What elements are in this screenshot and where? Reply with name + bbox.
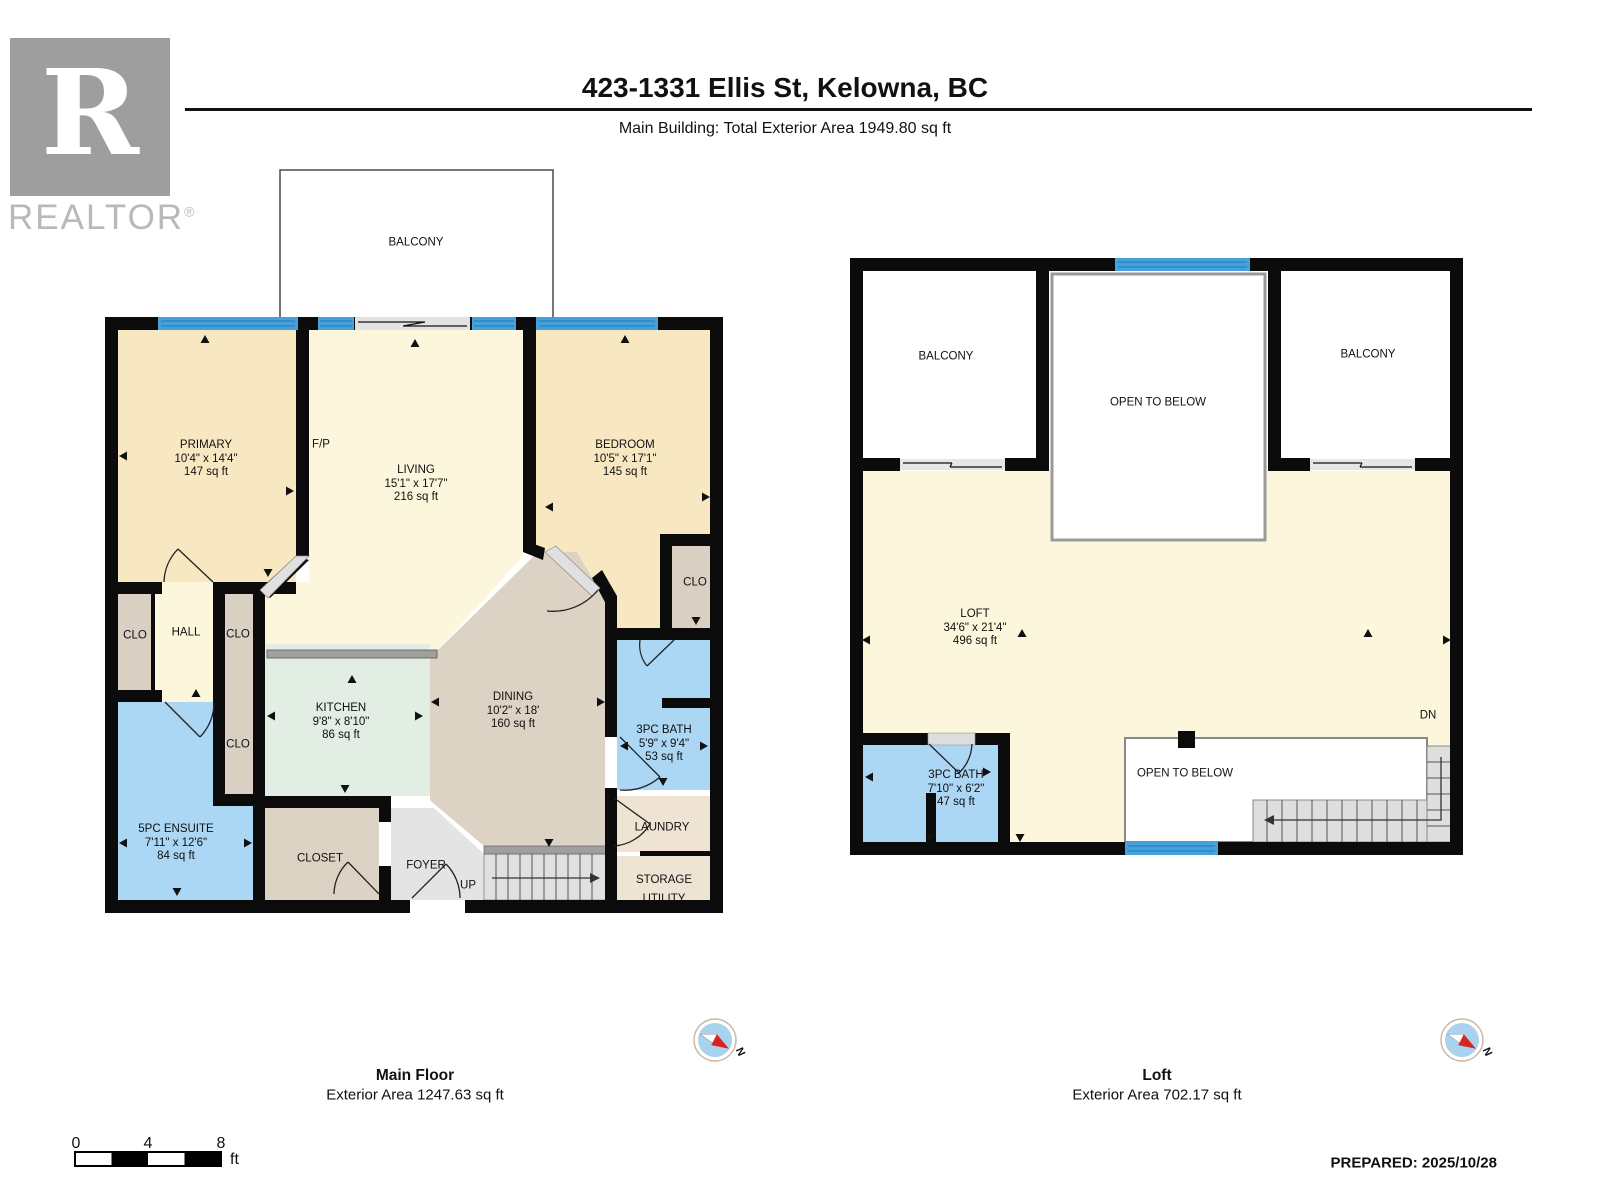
room-label-loft: LOFT34'6" x 21'4"496 sq ft [943, 608, 1006, 649]
room-label-fireplace: F/P [312, 438, 330, 452]
main-floor-caption-area: Exterior Area 1247.63 sq ft [326, 1087, 504, 1104]
room-label-kitchen: KITCHEN9'8" x 8'10"86 sq ft [313, 702, 370, 743]
scale-tick-0: 0 [72, 1135, 81, 1153]
room-label-bedroom: BEDROOM10'5" x 17'1"145 sq ft [593, 439, 656, 480]
room-label-bath-main: 3PC BATH5'9" x 9'4"53 sq ft [636, 724, 691, 765]
label-open-to-below-bottom: OPEN TO BELOW [1137, 767, 1233, 781]
loft-caption-title: Loft [1142, 1067, 1171, 1085]
kitchen-counter [267, 650, 437, 658]
stairs-up-label: UP [460, 879, 476, 893]
floorplan-canvas [0, 0, 1600, 1200]
scale-tick-4: 4 [144, 1135, 153, 1153]
label-open-to-below-top: OPEN TO BELOW [1110, 396, 1206, 410]
main-stairs [484, 846, 608, 900]
scale-bar [75, 1152, 221, 1166]
scale-tick-8: 8 [217, 1135, 226, 1153]
room-label-living: LIVING15'1" x 17'7"216 sq ft [384, 464, 447, 505]
floorplan-page: R REALTOR® 423-1331 Ellis St, Kelowna, B… [0, 0, 1600, 1200]
header-rule [185, 108, 1532, 111]
room-label-bath-loft: 3PC BATH7'10" x 6'2"47 sq ft [928, 769, 985, 810]
room-label-clo-left: CLO [123, 629, 147, 643]
loft-caption-area: Exterior Area 702.17 sq ft [1072, 1087, 1241, 1104]
room-label-clo-mid: CLO [226, 628, 250, 642]
room-label-storage-utility: STORAGEUTILITY [636, 871, 692, 909]
room-label-clo-bedroom: CLO [683, 576, 707, 590]
main-floor-caption-title: Main Floor [376, 1067, 454, 1085]
main-balcony-slider [355, 317, 470, 330]
room-label-ensuite: 5PC ENSUITE7'11" x 12'6"84 sq ft [138, 823, 213, 864]
room-label-balcony-right: BALCONY [1341, 348, 1396, 362]
page-title: 423-1331 Ellis St, Kelowna, BC [582, 72, 988, 104]
page-subtitle: Main Building: Total Exterior Area 1949.… [619, 120, 951, 138]
room-label-hall: HALL [172, 626, 201, 640]
realtor-logo-r: R [41, 54, 139, 172]
room-label-closet: CLOSET [297, 852, 343, 866]
prepared-date: PREPARED: 2025/10/28 [1331, 1155, 1497, 1172]
room-label-balcony-left: BALCONY [919, 350, 974, 364]
realtor-wordmark: REALTOR® [8, 198, 196, 238]
room-label-laundry: LAUNDRY [635, 821, 690, 835]
room-label-dining: DINING10'2" x 18'160 sq ft [487, 691, 540, 732]
room-label-primary: PRIMARY10'4" x 14'4"147 sq ft [174, 439, 237, 480]
scale-unit: ft [230, 1151, 239, 1169]
realtor-logo: R [10, 38, 170, 196]
compass-loft [1441, 1019, 1483, 1061]
compass-main [694, 1019, 736, 1061]
main-floor-plan [105, 170, 723, 913]
room-label-foyer: FOYER [406, 859, 446, 873]
room-label-balcony-main: BALCONY [389, 236, 444, 250]
room-label-clo-lower: CLO [226, 738, 250, 752]
stairs-dn-label: DN [1420, 709, 1437, 723]
